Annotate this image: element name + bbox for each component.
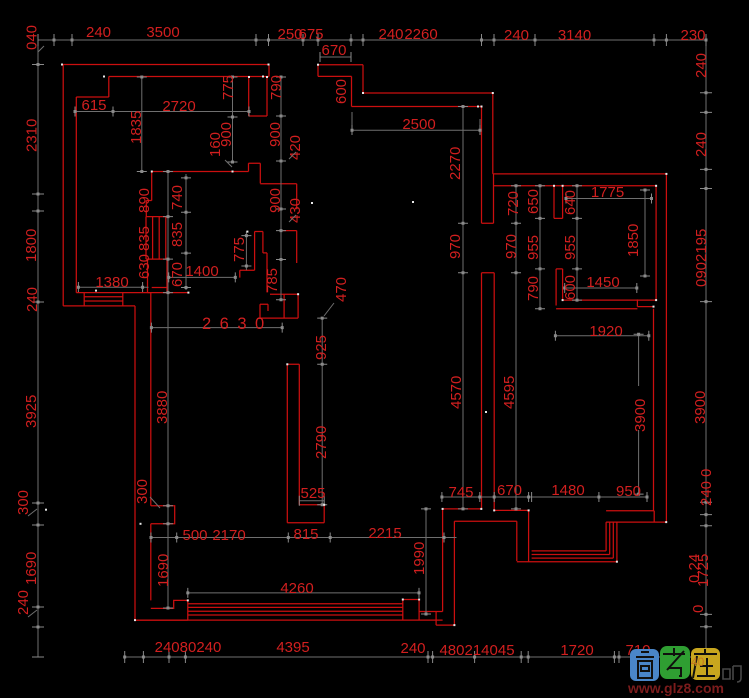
svg-text:2310: 2310	[24, 119, 41, 152]
svg-text:775: 775	[220, 75, 237, 100]
svg-text:2500: 2500	[402, 116, 435, 133]
svg-text:835: 835	[136, 226, 153, 251]
svg-text:720: 720	[505, 191, 522, 216]
svg-text:745: 745	[448, 484, 473, 501]
svg-text:740: 740	[169, 185, 186, 210]
svg-text:0: 0	[690, 605, 707, 613]
svg-text:1400: 1400	[185, 263, 218, 280]
svg-text:500: 500	[182, 527, 207, 544]
svg-text:1690: 1690	[23, 552, 40, 585]
svg-text:240: 240	[15, 590, 32, 615]
svg-text:600: 600	[562, 275, 579, 300]
svg-text:525: 525	[300, 485, 325, 502]
svg-text:240: 240	[504, 27, 529, 44]
svg-text:900: 900	[267, 122, 284, 147]
svg-text:3900: 3900	[632, 399, 649, 432]
svg-text:675: 675	[298, 26, 323, 43]
svg-text:090: 090	[693, 262, 710, 287]
svg-text:790: 790	[525, 276, 542, 301]
svg-text:www.glz8.com: www.glz8.com	[627, 680, 724, 696]
svg-text:3900: 3900	[692, 391, 709, 424]
svg-text:1800: 1800	[23, 229, 40, 262]
svg-text:3140: 3140	[558, 27, 591, 44]
svg-text:300: 300	[15, 490, 32, 515]
svg-text:430: 430	[287, 198, 304, 223]
svg-text:3500: 3500	[146, 24, 179, 41]
svg-text:2170: 2170	[212, 527, 245, 544]
svg-text:0.24: 0.24	[686, 554, 703, 583]
svg-text:240: 240	[698, 481, 715, 506]
svg-text:240: 240	[378, 26, 403, 43]
svg-text:640: 640	[562, 190, 579, 215]
svg-text:790: 790	[268, 75, 285, 100]
svg-text:240: 240	[86, 24, 111, 41]
svg-text:240: 240	[24, 287, 41, 312]
svg-text:1720: 1720	[560, 642, 593, 659]
svg-text:815: 815	[293, 526, 318, 543]
svg-text:480214045: 480214045	[439, 642, 514, 659]
svg-text:670: 670	[321, 42, 346, 59]
svg-text:470: 470	[333, 277, 350, 302]
svg-text:4260: 4260	[280, 580, 313, 597]
svg-text:420: 420	[287, 135, 304, 160]
svg-text:1480: 1480	[551, 482, 584, 499]
svg-text:2215: 2215	[368, 525, 401, 542]
svg-text:0: 0	[698, 469, 715, 477]
svg-text:1380: 1380	[95, 274, 128, 291]
svg-text:300: 300	[134, 479, 151, 504]
svg-text:1850: 1850	[625, 224, 642, 257]
svg-text:670: 670	[169, 262, 186, 287]
svg-text:955: 955	[525, 235, 542, 260]
svg-text:2195: 2195	[693, 229, 710, 262]
svg-text:2720: 2720	[162, 98, 195, 115]
svg-text:4595: 4595	[501, 376, 518, 409]
svg-text:970: 970	[503, 234, 520, 259]
svg-text:3925: 3925	[23, 395, 40, 428]
svg-text:4395: 4395	[276, 639, 309, 656]
svg-text:2630: 2630	[202, 315, 273, 333]
svg-text:1990: 1990	[411, 542, 428, 575]
svg-text:2270: 2270	[447, 147, 464, 180]
svg-text:1450: 1450	[586, 274, 619, 291]
svg-text:600: 600	[333, 79, 350, 104]
svg-text:240: 240	[693, 132, 710, 157]
svg-text:670: 670	[497, 482, 522, 499]
svg-text:1775: 1775	[591, 184, 624, 201]
svg-text:970: 970	[447, 234, 464, 259]
svg-text:785: 785	[264, 268, 281, 293]
svg-text:955: 955	[562, 235, 579, 260]
svg-text:2260: 2260	[404, 26, 437, 43]
svg-text:1835: 1835	[128, 111, 145, 144]
svg-text:630: 630	[136, 254, 153, 279]
svg-text:775: 775	[231, 237, 248, 262]
svg-text:240: 240	[400, 640, 425, 657]
svg-text:890: 890	[136, 188, 153, 213]
svg-text:835: 835	[169, 222, 186, 247]
svg-text:2790: 2790	[313, 426, 330, 459]
svg-text:1920: 1920	[589, 323, 622, 340]
svg-text:230: 230	[680, 27, 705, 44]
svg-text:3880: 3880	[154, 391, 171, 424]
svg-text:24080240: 24080240	[155, 639, 222, 656]
svg-text:40: 40	[691, 655, 705, 669]
svg-text:1690: 1690	[155, 554, 172, 587]
svg-text:950: 950	[616, 483, 641, 500]
svg-text:925: 925	[313, 335, 330, 360]
svg-text:900: 900	[267, 188, 284, 213]
svg-text:240: 240	[693, 53, 710, 78]
svg-text:160: 160	[207, 132, 224, 157]
svg-text:040: 040	[24, 25, 41, 50]
svg-text:650: 650	[525, 189, 542, 214]
svg-text:4570: 4570	[448, 376, 465, 409]
svg-text:615: 615	[81, 97, 106, 114]
